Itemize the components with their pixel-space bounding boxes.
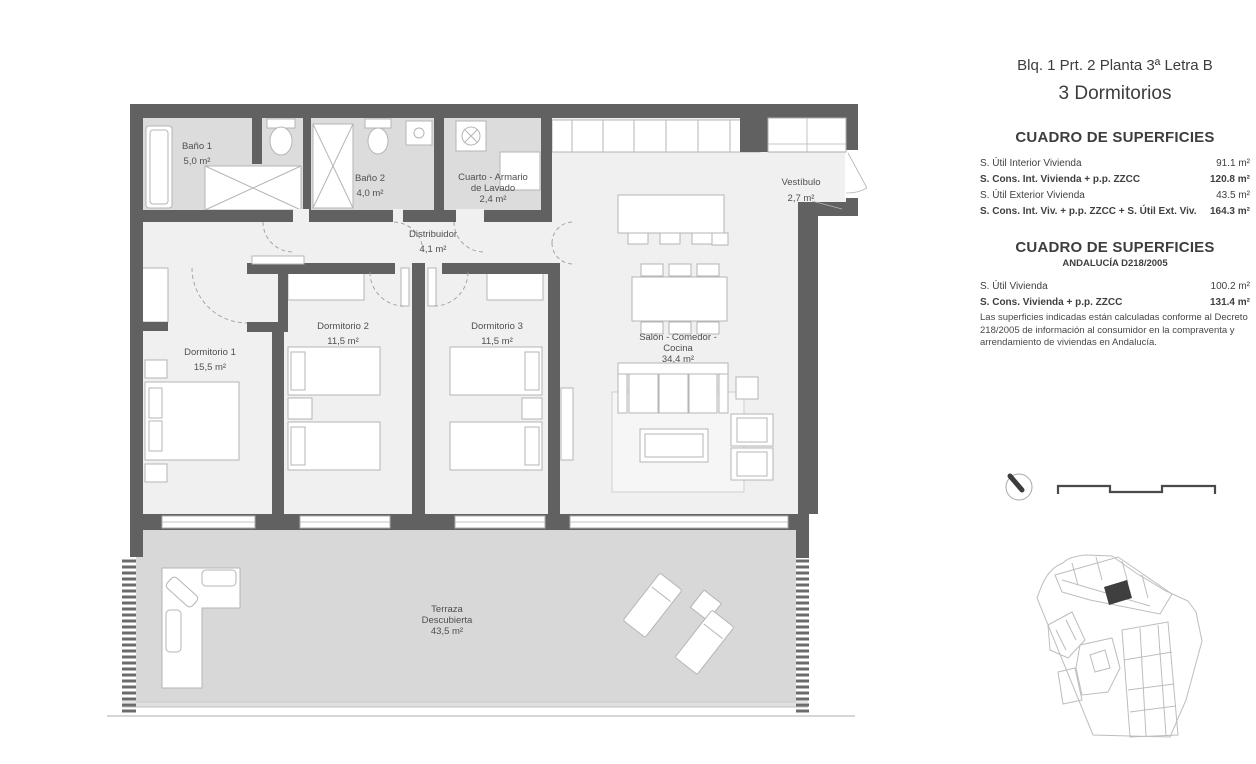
wardrobe	[288, 273, 364, 300]
row-value: 100.2 m²	[1211, 281, 1250, 292]
door-leaf	[252, 256, 304, 264]
surfaces-table-1: S. Útil Interior Vivienda 91.1 m² S. Con…	[980, 155, 1250, 219]
surfaces-table-1-title: CUADRO DE SUPERFICIES	[980, 129, 1250, 146]
room-area: 11,5 m²	[327, 336, 359, 347]
toilet-tank	[365, 119, 391, 128]
surfaces-table-2: S. Útil Vivienda 100.2 m² S. Cons. Vivie…	[980, 278, 1250, 310]
sofa	[618, 363, 728, 413]
room-area: 4,0 m²	[357, 188, 384, 199]
north-compass-icon	[1006, 474, 1032, 500]
nightstand	[288, 398, 312, 419]
table-row: S. Cons. Int. Viv. + p.p. ZZCC + S. Útil…	[980, 203, 1250, 219]
dining-table	[632, 264, 727, 334]
plan-sheet: Baño 1 5,0 m² Baño 2 4,0 m² Cuarto - Arm…	[0, 0, 1256, 764]
extractor-fan-icon	[456, 121, 486, 151]
surfaces-table-2-subtitle: ANDALUCÍA D218/2005	[980, 258, 1250, 269]
row-value: 131.4 m²	[1210, 297, 1250, 308]
scale-bar	[1058, 486, 1215, 494]
row-label: S. Útil Exterior Vivienda	[980, 190, 1085, 201]
row-label: S. Cons. Int. Viv. + p.p. ZZCC + S. Útil…	[980, 206, 1197, 217]
nightstand	[522, 398, 542, 419]
room-label: Vestíbulo	[781, 177, 820, 188]
table-row: S. Útil Interior Vivienda 91.1 m²	[980, 155, 1250, 171]
unit-location-marker	[1104, 580, 1132, 605]
door-leaf	[428, 268, 436, 306]
site-plan-map	[1037, 555, 1202, 737]
closet	[140, 268, 168, 322]
table-row: S. Útil Vivienda 100.2 m²	[980, 278, 1250, 294]
wardrobe	[487, 273, 543, 300]
room-label: Dormitorio 1	[184, 347, 236, 358]
row-label: S. Cons. Int. Vivienda + p.p. ZZCC	[980, 174, 1140, 185]
door-leaf	[401, 268, 409, 306]
room-area: 2,7 m²	[788, 193, 815, 204]
room-area: 34,4 m²	[662, 354, 694, 365]
surfaces-table-2-title: CUADRO DE SUPERFICIES	[980, 239, 1250, 256]
room-area: 15,5 m²	[194, 362, 226, 373]
shelf	[561, 388, 573, 460]
room-label: Terraza	[431, 604, 463, 615]
table-row: S. Útil Exterior Vivienda 43.5 m²	[980, 187, 1250, 203]
railing-hatch-right	[796, 558, 809, 714]
sink	[406, 121, 432, 145]
kitchen-island	[618, 195, 728, 245]
toilet	[368, 128, 388, 154]
row-label: S. Útil Vivienda	[980, 281, 1048, 292]
legal-note: Las superficies indicadas están calculad…	[980, 312, 1250, 350]
room-area: 5,0 m²	[184, 156, 211, 167]
room-label: Cocina	[663, 343, 693, 354]
row-value: 43.5 m²	[1216, 190, 1250, 201]
row-label: S. Útil Interior Vivienda	[980, 158, 1082, 169]
row-value: 164.3 m²	[1210, 206, 1250, 217]
room-label: Salón - Comedor -	[639, 332, 717, 343]
nightstand	[145, 360, 167, 378]
room-label: Distribuidor	[409, 229, 457, 240]
railing-hatch-left	[122, 557, 136, 714]
room-area: 2,4 m²	[480, 194, 507, 205]
info-panel: Blq. 1 Prt. 2 Planta 3ª Letra B 3 Dormit…	[980, 57, 1250, 350]
room-label: de Lavado	[471, 183, 515, 194]
row-label: S. Cons. Vivienda + p.p. ZZCC	[980, 297, 1122, 308]
table-row: S. Cons. Int. Vivienda + p.p. ZZCC 120.8…	[980, 171, 1250, 187]
kitchen-cabinets	[552, 120, 760, 152]
room-label: Dormitorio 2	[317, 321, 369, 332]
room-area: 43,5 m²	[431, 626, 463, 637]
row-value: 91.1 m²	[1216, 158, 1250, 169]
side-table	[736, 377, 758, 399]
room-label: Baño 2	[355, 173, 385, 184]
room-label: Descubierta	[422, 615, 473, 626]
table-row: S. Cons. Vivienda + p.p. ZZCC 131.4 m²	[980, 294, 1250, 310]
room-label: Baño 1	[182, 141, 212, 152]
row-value: 120.8 m²	[1210, 174, 1250, 185]
room-area: 4,1 m²	[420, 244, 447, 255]
page-title: 3 Dormitorios	[980, 83, 1250, 105]
coffee-table	[640, 429, 708, 462]
room-area: 11,5 m²	[481, 336, 513, 347]
plan-reference: Blq. 1 Prt. 2 Planta 3ª Letra B	[980, 57, 1250, 74]
room-label: Dormitorio 3	[471, 321, 523, 332]
toilet	[270, 127, 292, 155]
room-label: Cuarto - Armario	[458, 172, 528, 183]
nightstand	[145, 464, 167, 482]
